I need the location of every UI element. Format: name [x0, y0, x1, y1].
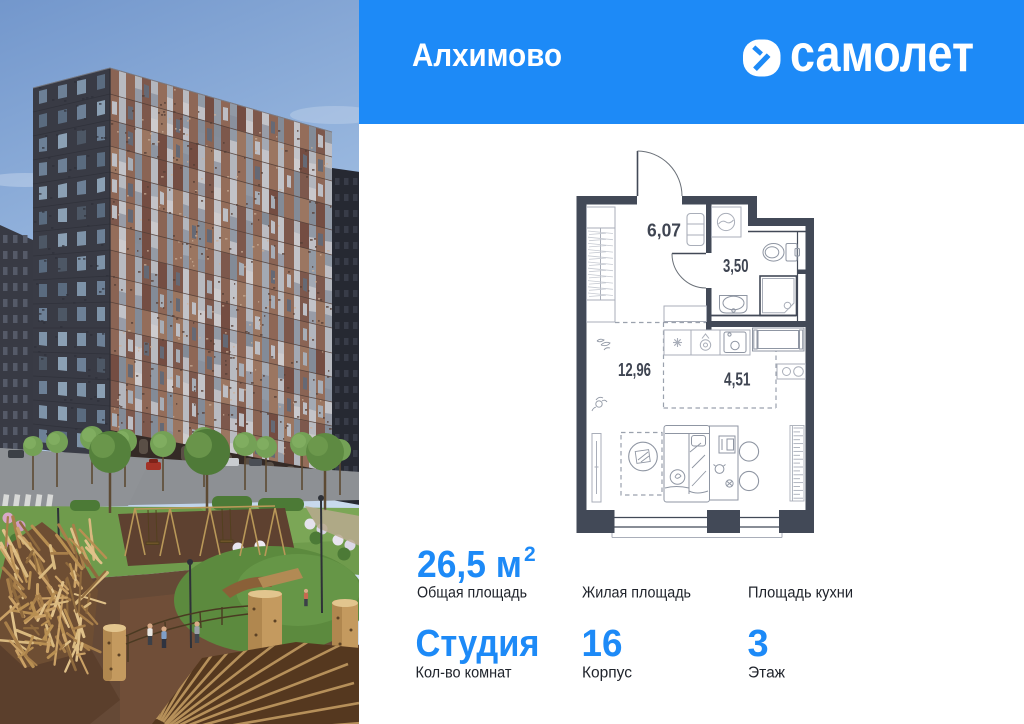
svg-text:4,51: 4,51: [724, 370, 751, 390]
svg-text:12,96: 12,96: [618, 360, 651, 380]
svg-text:Корпус: Корпус: [582, 665, 632, 682]
svg-text:Общая площадь: Общая площадь: [417, 585, 527, 602]
svg-text:Этаж: Этаж: [748, 665, 786, 682]
svg-text:Площадь кухни: Площадь кухни: [748, 585, 853, 602]
svg-text:3,50: 3,50: [723, 256, 749, 276]
svg-text:Алхимово: Алхимово: [412, 37, 562, 73]
svg-text:26,5 м: 26,5 м: [417, 544, 522, 586]
svg-text:2: 2: [524, 543, 536, 566]
svg-text:16: 16: [582, 623, 623, 665]
svg-text:Кол-во комнат: Кол-во комнат: [416, 665, 512, 682]
svg-text:Жилая площадь: Жилая площадь: [582, 585, 691, 602]
svg-text:6,07: 6,07: [647, 221, 681, 241]
svg-text:самолет: самолет: [790, 25, 974, 83]
svg-text:Студия: Студия: [416, 623, 540, 665]
svg-text:3: 3: [748, 623, 769, 665]
